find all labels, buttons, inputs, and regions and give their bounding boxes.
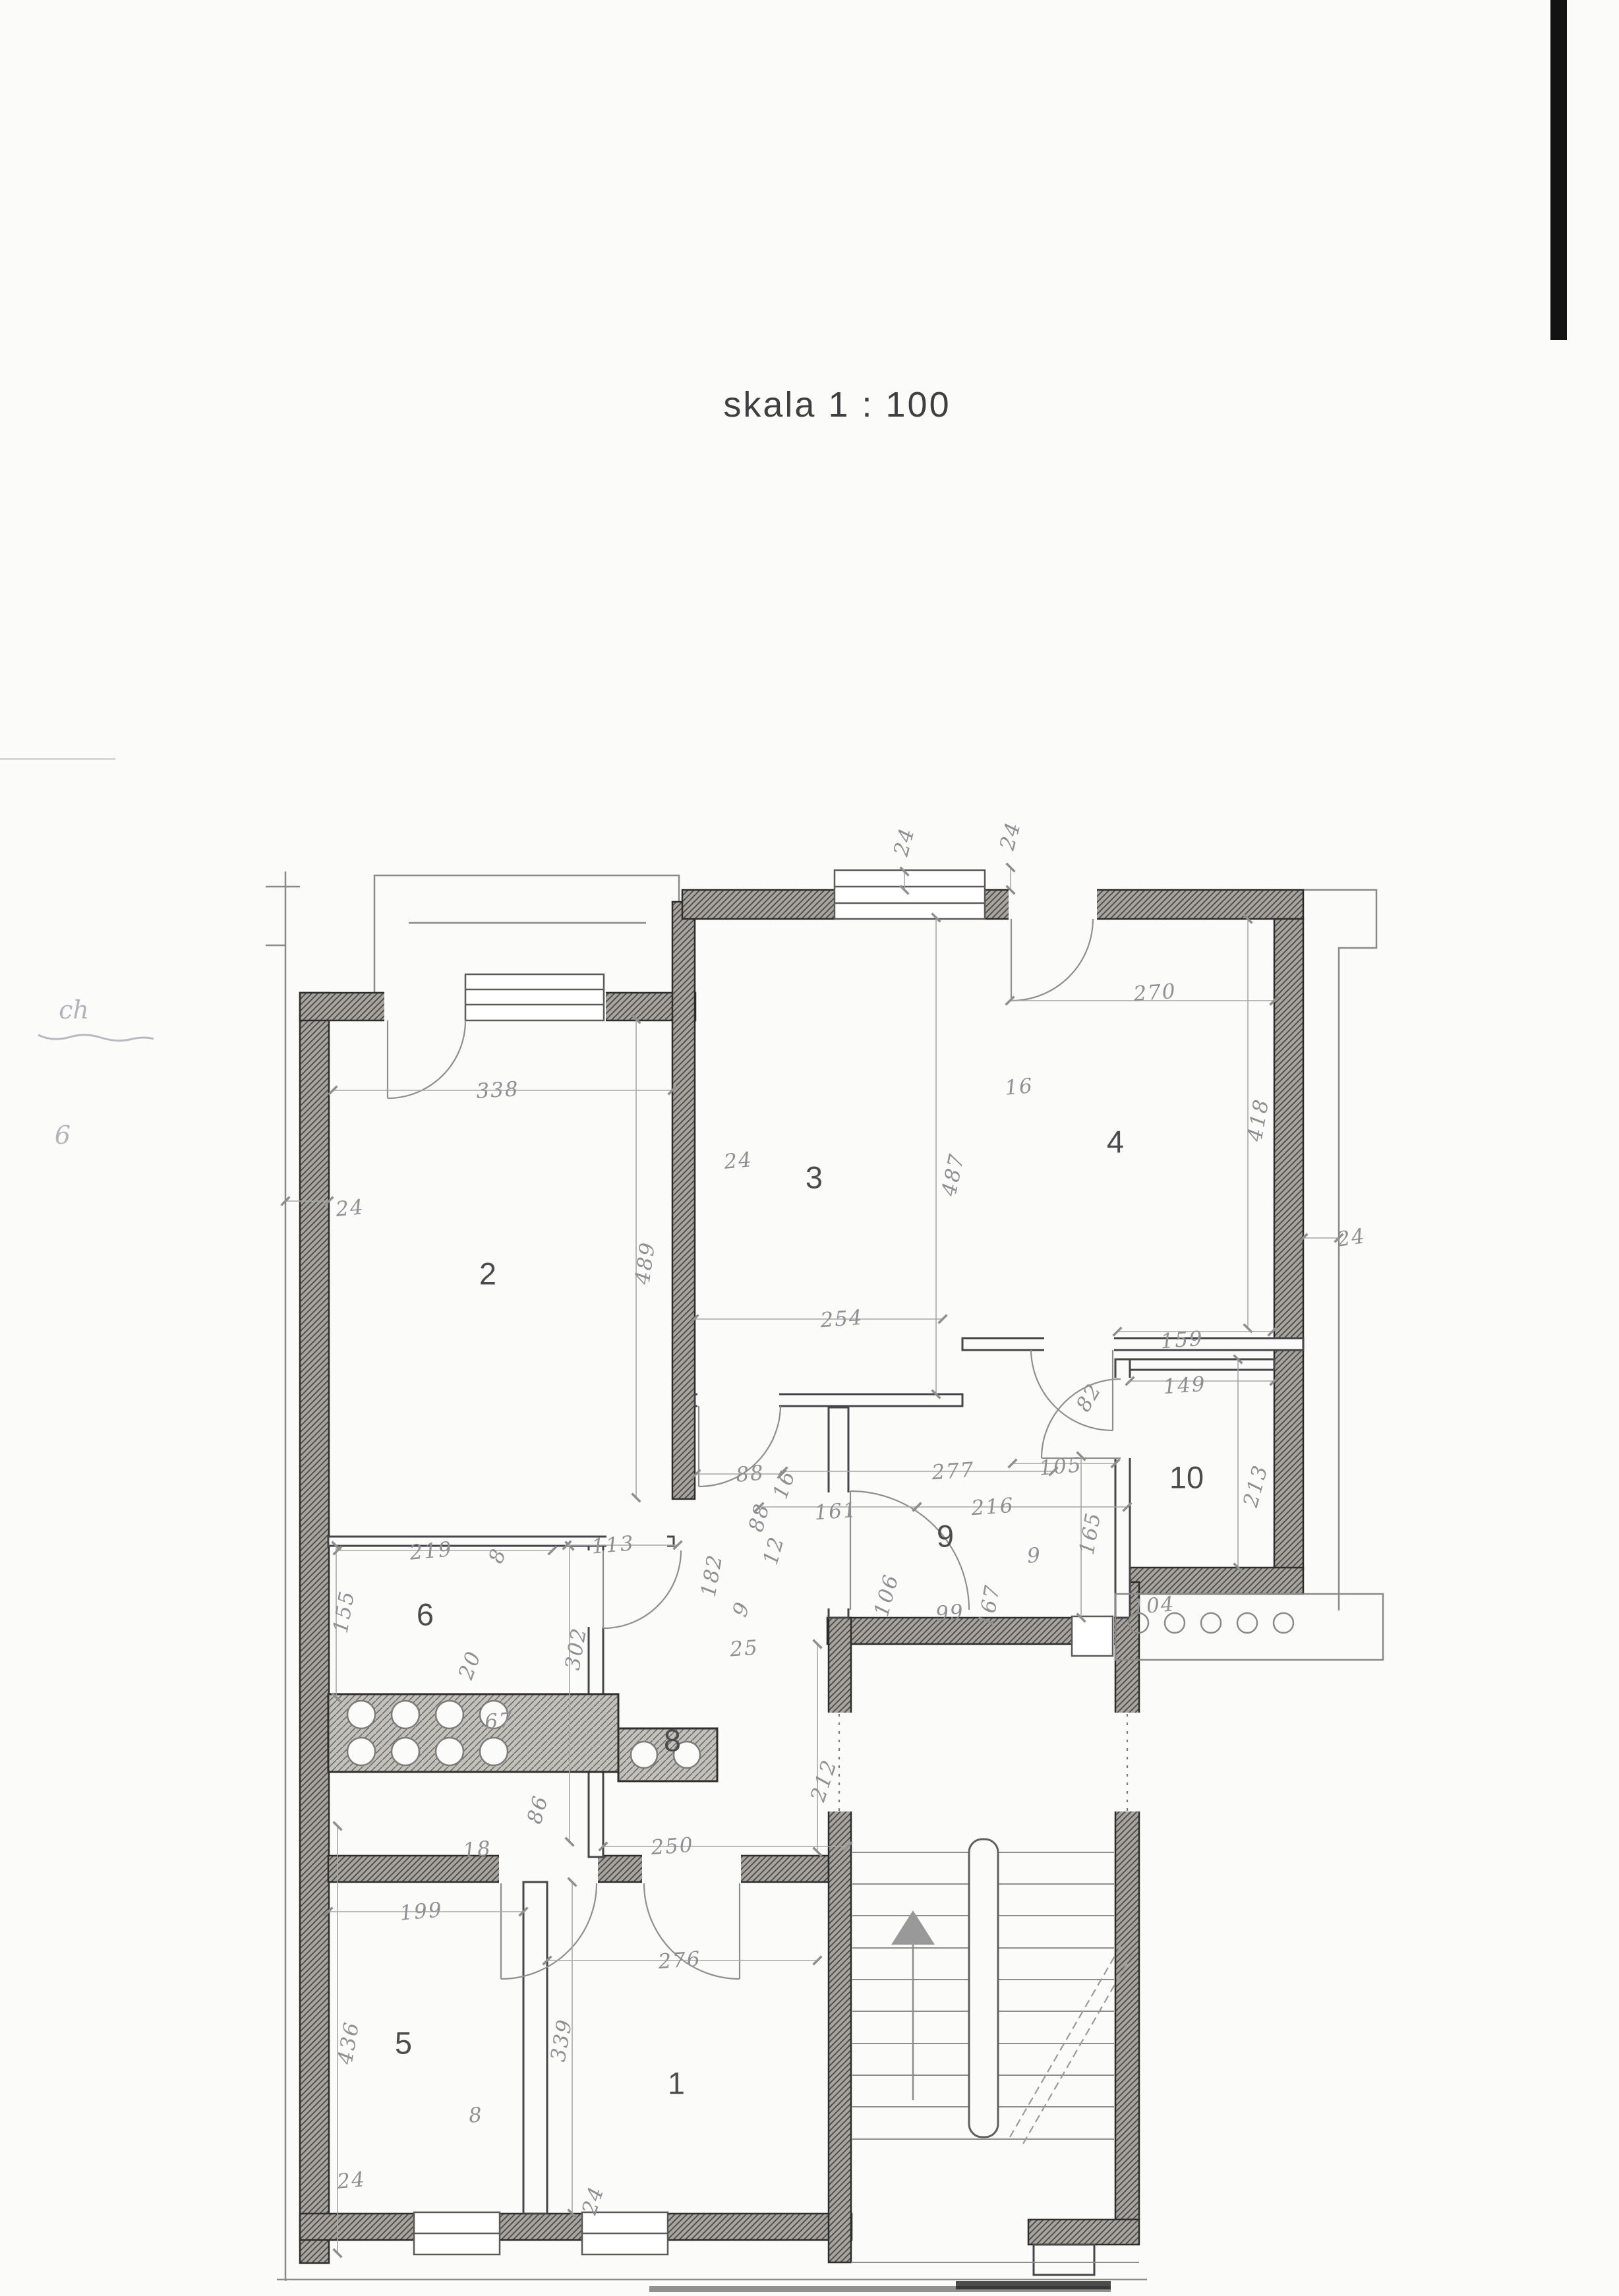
dimension-label: 16 bbox=[1004, 1074, 1034, 1100]
dimension-label: 489 bbox=[631, 1240, 661, 1286]
dimension-label: 67 bbox=[484, 1708, 514, 1734]
dimension-label: 82 bbox=[1072, 1379, 1107, 1416]
dimension-label: 165 bbox=[1075, 1510, 1106, 1556]
room-number: 5 bbox=[395, 2025, 412, 2061]
dimension-label: 24 bbox=[889, 825, 920, 858]
dimension-label: 436 bbox=[334, 2020, 365, 2066]
dimension-label: 24 bbox=[723, 1148, 753, 1174]
dimension-label: 338 bbox=[476, 1077, 520, 1103]
dimension-label: 213 bbox=[1239, 1462, 1273, 1510]
dimension-label: 20 bbox=[454, 1647, 486, 1682]
dimension-label: 219 bbox=[409, 1537, 454, 1565]
scanned-floor-plan-page: { "title": "skala 1 : 100", "margin_note… bbox=[0, 0, 1619, 2296]
dimension-label: 24 bbox=[335, 1195, 365, 1222]
dimension-label: 86 bbox=[523, 1792, 553, 1826]
room-number: 2 bbox=[479, 1256, 496, 1292]
dimension-label: 99 bbox=[935, 1600, 965, 1626]
dimension-label: 487 bbox=[937, 1151, 970, 1198]
margin-note: ch bbox=[59, 995, 89, 1024]
room-number: 10 bbox=[1169, 1459, 1204, 1496]
label-layer: 2346891051242433824489244872541627041824… bbox=[0, 0, 1619, 2296]
dimension-label: 199 bbox=[399, 1898, 444, 1926]
dimension-label: 9 bbox=[728, 1599, 755, 1620]
room-number: 3 bbox=[806, 1160, 823, 1196]
room-number: 8 bbox=[664, 1722, 681, 1759]
dimension-label: 24 bbox=[1336, 1224, 1367, 1252]
dimension-label: 276 bbox=[657, 1947, 702, 1974]
room-number: 9 bbox=[937, 1518, 954, 1554]
room-number: 1 bbox=[668, 2065, 685, 2102]
dimension-label: 182 bbox=[697, 1552, 728, 1599]
dimension-label: 105 bbox=[1038, 1453, 1083, 1481]
dimension-label: 24 bbox=[577, 2183, 609, 2218]
dimension-label: 339 bbox=[546, 2017, 577, 2063]
room-number: 4 bbox=[1107, 1124, 1124, 1160]
dimension-label: 24 bbox=[995, 819, 1026, 852]
dimension-label: 8 bbox=[468, 2103, 485, 2128]
dimension-label: 216 bbox=[970, 1494, 1015, 1520]
dimension-label: 161 bbox=[813, 1498, 858, 1525]
dimension-label: 25 bbox=[729, 1636, 759, 1662]
dimension-label: 24 bbox=[336, 2167, 367, 2194]
dimension-label: 88 bbox=[735, 1461, 765, 1487]
dimension-label: 106 bbox=[869, 1572, 904, 1619]
margin-note: 6 bbox=[55, 1121, 71, 1150]
dimension-label: 16 bbox=[769, 1467, 801, 1502]
dimension-label: 167 bbox=[974, 1583, 1005, 1629]
dimension-label: 88 bbox=[744, 1500, 775, 1534]
dimension-label: 302 bbox=[561, 1626, 592, 1672]
dimension-label: 155 bbox=[329, 1589, 360, 1635]
room-number: 6 bbox=[417, 1597, 434, 1633]
dimension-label: 418 bbox=[1243, 1097, 1274, 1143]
dimension-label: 8 bbox=[484, 1545, 511, 1567]
dimension-label: 9 bbox=[1026, 1543, 1042, 1568]
dimension-label: 250 bbox=[650, 1833, 695, 1860]
dimension-label: 18 bbox=[462, 1837, 492, 1863]
dimension-label: 277 bbox=[931, 1458, 976, 1485]
dimension-label: 254 bbox=[819, 1306, 864, 1332]
dimension-label: 113 bbox=[591, 1531, 635, 1559]
dimension-label: 212 bbox=[806, 1756, 842, 1804]
dimension-label: 12 bbox=[759, 1533, 789, 1567]
dimension-label: 104 bbox=[1131, 1592, 1176, 1620]
dimension-label: 149 bbox=[1162, 1372, 1207, 1399]
dimension-label: 270 bbox=[1133, 980, 1177, 1006]
dimension-label: 159 bbox=[1160, 1327, 1204, 1353]
